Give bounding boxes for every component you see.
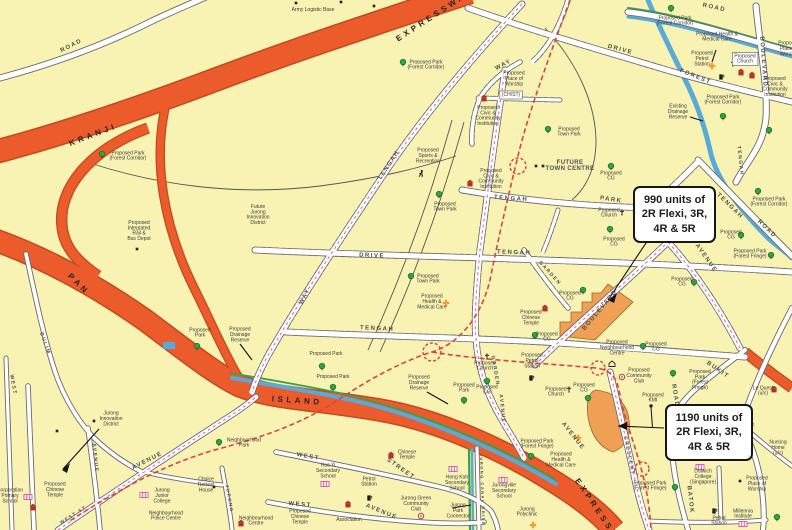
poi-label: ProposedIntegratedRail &Bus Depot <box>127 220 151 242</box>
callout-1190-units: 1190 units of 2R Flexi, 3R, 4R & 5R <box>665 404 753 461</box>
poi-label: ProposedChineseTemple <box>289 509 311 526</box>
poi-label: ProposedDrainageReserve <box>408 375 430 392</box>
school-icon <box>24 495 32 500</box>
poi-label: ProposedChurch <box>474 360 496 371</box>
callout-line: 2R Flexi, 3R, <box>638 207 711 221</box>
dot-icon <box>136 248 139 251</box>
poi-label: ProposedTown Park <box>433 201 457 212</box>
map-canvas[interactable]: KRANJIEXPRESSWAYPANISLANDEXPRESSWAYROADR… <box>0 0 792 530</box>
poi-label: ProposedTown Park <box>416 273 440 284</box>
poi-label: Association <box>336 517 362 523</box>
poi-label: ProposedChurch <box>734 53 756 64</box>
poi-label: Proposed Park(Forest Corridor) <box>110 150 147 161</box>
callout-990-units: 990 units of 2R Flexi, 3R, 4R & 5R <box>633 186 716 243</box>
poi-label: Proposed Park(Forest Fringe) <box>733 248 767 259</box>
dot-icon <box>295 2 298 5</box>
poi-label: Army Logistic Base <box>292 7 335 13</box>
poi-label: (CH/ST) <box>502 92 521 98</box>
poi-label: ProposedDrainageReserve <box>229 327 251 344</box>
club-icon <box>418 513 423 518</box>
poi-label: Proposed Park <box>316 374 350 380</box>
poi-label: ProposedPark(ForestFringe) <box>689 369 711 391</box>
poi-label: ProposedCivic &CommunityInstitution <box>475 105 501 127</box>
poi-label: Proposed Park <box>309 351 343 357</box>
dot-icon <box>56 430 59 433</box>
school-icon <box>739 522 747 527</box>
poi-label: ProposedTown Park <box>557 126 581 137</box>
poi-label: ChineseTemple <box>398 449 417 460</box>
callout-line: 2R Flexi, 3R, <box>670 425 748 439</box>
poi-label: ChoiceRetreatHouse <box>198 477 215 494</box>
road-label: DRIVE <box>359 253 385 260</box>
callout-line: 4R & 5R <box>670 440 748 454</box>
dot-icon <box>340 1 343 4</box>
poi-label: Proposed Park(Forest Corridor) <box>657 15 694 26</box>
poi-label: ProposedChineseTemple <box>44 482 66 499</box>
road-surface <box>719 468 721 521</box>
poi-label: ProposedChurch <box>598 207 620 218</box>
poi-label: ProposedSports &Recreation <box>416 148 440 165</box>
pond <box>163 342 175 349</box>
poi-label: ProposedChurch <box>545 386 567 397</box>
callout-line: 1190 units of <box>670 411 748 425</box>
poi-label: Proposed Park(Forest Corridor) <box>751 196 788 207</box>
poi-label: PetrolStation <box>361 476 377 487</box>
poi-label: MillenniaInstitute <box>733 508 753 519</box>
poi-label: Proposed Park(Forest Corridor) <box>408 59 445 70</box>
dot-icon <box>535 165 538 168</box>
road-surface <box>477 448 479 530</box>
poi-label: PetrolStation <box>711 515 727 526</box>
club-icon <box>619 374 624 379</box>
road-label: TENGAH <box>497 249 532 256</box>
poi-label: ProposedCivic &CommunityInstitution <box>762 76 788 98</box>
dot-icon <box>93 420 96 423</box>
poi-label: ProposedCivic &CommunityInstitution <box>478 168 504 190</box>
poi-label: ProposedChineseTemple <box>520 310 542 327</box>
dot-icon <box>542 165 545 168</box>
school-icon <box>140 493 148 498</box>
poi-label: ProposedPlace ofWorship <box>746 476 768 493</box>
poi-label: Proposed Park(Forest Fringe) <box>633 480 667 491</box>
callout-line: 4R & 5R <box>638 222 711 236</box>
school-icon <box>321 482 329 487</box>
poi-label: NeighbourhoodPolice Centre <box>149 510 183 521</box>
school-icon <box>449 467 457 472</box>
poi-label: ProposedPlace ofWorship <box>778 41 792 58</box>
dot-icon <box>739 480 742 483</box>
poi-label: ProposedPlace ofWorship <box>503 71 525 88</box>
poi-label: ExistingDrainageReserve <box>668 104 689 121</box>
dot-icon <box>373 5 376 8</box>
poi-label: JurongJuniorCollege <box>154 488 171 505</box>
poi-label: Proposed Park(Forest Corridor) <box>705 94 742 105</box>
callout-line: 990 units of <box>638 193 711 207</box>
poi-label: Proposed Park(Forest Fringe) <box>520 438 554 449</box>
